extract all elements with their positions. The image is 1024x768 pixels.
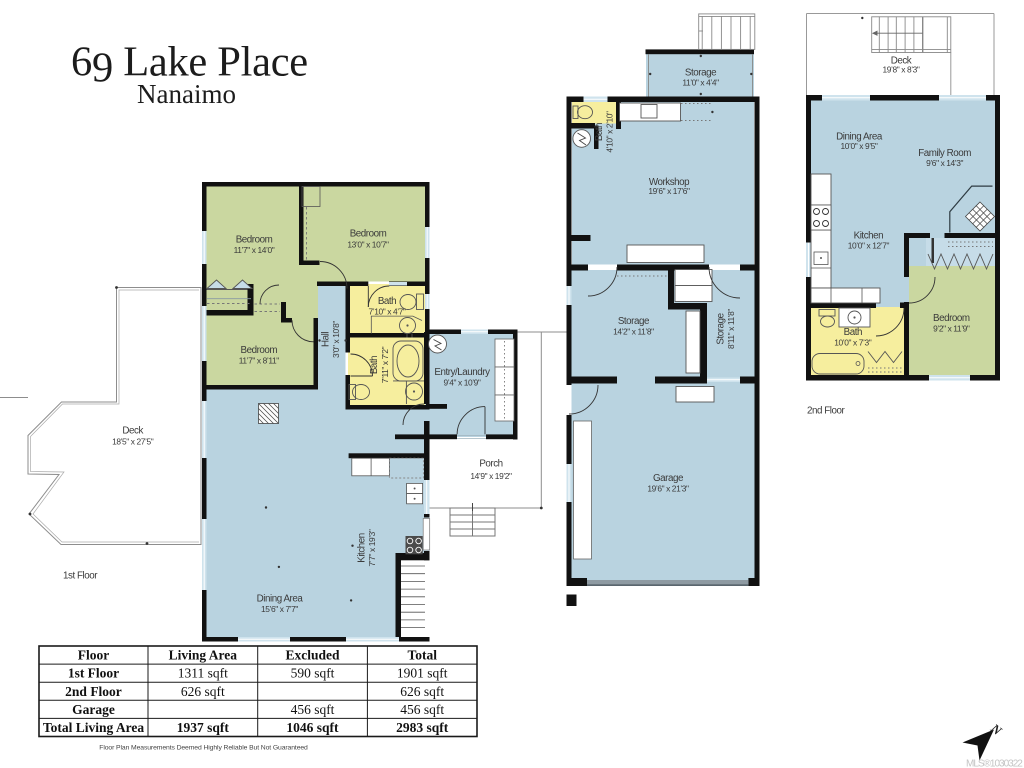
svg-text:Storage: Storage: [716, 312, 727, 344]
svg-text:Total: Total: [407, 648, 437, 663]
svg-text:Floor: Floor: [78, 648, 110, 663]
svg-text:10’0" x 12’7": 10’0" x 12’7": [848, 241, 890, 251]
svg-text:Dining Area: Dining Area: [257, 594, 304, 605]
svg-text:626 sqft: 626 sqft: [400, 684, 444, 699]
svg-text:590 sqft: 590 sqft: [291, 666, 335, 681]
svg-text:Garage: Garage: [72, 702, 115, 717]
svg-text:456 sqft: 456 sqft: [291, 702, 335, 717]
svg-text:4’10" x 2’10": 4’10" x 2’10": [605, 111, 615, 153]
svg-text:8’11" x 11’8": 8’11" x 11’8": [726, 309, 736, 349]
svg-text:Excluded: Excluded: [285, 648, 340, 663]
svg-text:7’7" x 19’3": 7’7" x 19’3": [367, 529, 377, 566]
svg-text:7’11" x 7’2": 7’11" x 7’2": [380, 346, 390, 383]
svg-text:10’0" x 9’5": 10’0" x 9’5": [841, 141, 878, 151]
svg-text:19’6" x 21’3": 19’6" x 21’3": [647, 484, 689, 494]
svg-text:Floor Plan Measurements Deemed: Floor Plan Measurements Deemed Highly Re…: [99, 745, 308, 752]
svg-text:7’10" x 4’7": 7’10" x 4’7": [369, 307, 406, 317]
svg-text:15’6" x 7’7": 15’6" x 7’7": [261, 604, 298, 614]
svg-text:Bath: Bath: [844, 327, 862, 338]
svg-text:1311 sqft: 1311 sqft: [178, 666, 228, 681]
svg-text:Bath: Bath: [369, 356, 380, 374]
svg-text:Garage: Garage: [653, 473, 684, 484]
svg-text:Bedroom: Bedroom: [350, 228, 387, 239]
svg-text:Bath: Bath: [594, 123, 605, 141]
svg-text:13’0" x 10’7": 13’0" x 10’7": [347, 239, 389, 249]
svg-text:Entry/Laundry: Entry/Laundry: [434, 367, 490, 378]
svg-text:11’7" x 8’11": 11’7" x 8’11": [239, 356, 279, 366]
svg-text:1937 sqft: 1937 sqft: [177, 720, 230, 735]
svg-text:18’5" x 27’5": 18’5" x 27’5": [112, 437, 154, 447]
svg-text:9’6" x 14’3": 9’6" x 14’3": [926, 158, 963, 168]
svg-text:Porch: Porch: [479, 459, 502, 470]
svg-text:1901 sqft: 1901 sqft: [397, 666, 448, 681]
svg-text:11’0" x 4’4": 11’0" x 4’4": [682, 78, 719, 88]
svg-text:3’0" x 10’8": 3’0" x 10’8": [331, 321, 341, 358]
svg-text:Nanaimo: Nanaimo: [137, 79, 236, 109]
svg-text:10’0" x 7’3": 10’0" x 7’3": [834, 338, 871, 348]
svg-text:19’6" x 17’6": 19’6" x 17’6": [648, 186, 690, 196]
svg-text:Total Living Area: Total Living Area: [43, 720, 145, 735]
svg-text:1st Floor: 1st Floor: [68, 666, 119, 681]
svg-text:Storage: Storage: [618, 316, 650, 327]
svg-text:11’7" x 14’0": 11’7" x 14’0": [234, 245, 275, 255]
svg-text:9’4" x 10’9": 9’4" x 10’9": [444, 378, 481, 388]
svg-text:14’2" x 11’8": 14’2" x 11’8": [613, 327, 654, 337]
svg-text:Living Area: Living Area: [169, 648, 238, 663]
svg-text:1st Floor: 1st Floor: [63, 571, 98, 582]
svg-text:Bedroom: Bedroom: [240, 345, 277, 356]
svg-text:Hall: Hall: [321, 332, 332, 347]
svg-text:9’2" x 11’9": 9’2" x 11’9": [933, 324, 970, 334]
svg-text:2983 sqft: 2983 sqft: [396, 720, 449, 735]
svg-text:456 sqft: 456 sqft: [400, 702, 444, 717]
svg-text:14’9" x 19’2": 14’9" x 19’2": [470, 471, 512, 481]
svg-text:1046 sqft: 1046 sqft: [286, 720, 339, 735]
svg-text:19’8" x 8’3": 19’8" x 8’3": [883, 65, 920, 75]
svg-text:Kitchen: Kitchen: [357, 533, 368, 563]
svg-text:626 sqft: 626 sqft: [181, 684, 225, 699]
svg-text:2nd Floor: 2nd Floor: [807, 406, 846, 417]
svg-text:2nd Floor: 2nd Floor: [65, 684, 122, 699]
svg-text:Bath: Bath: [378, 296, 396, 307]
svg-text:Bedroom: Bedroom: [933, 313, 970, 324]
svg-text:Deck: Deck: [122, 426, 143, 437]
svg-text:Bedroom: Bedroom: [236, 234, 273, 245]
svg-text:MLS®1030322: MLS®1030322: [966, 759, 1023, 768]
